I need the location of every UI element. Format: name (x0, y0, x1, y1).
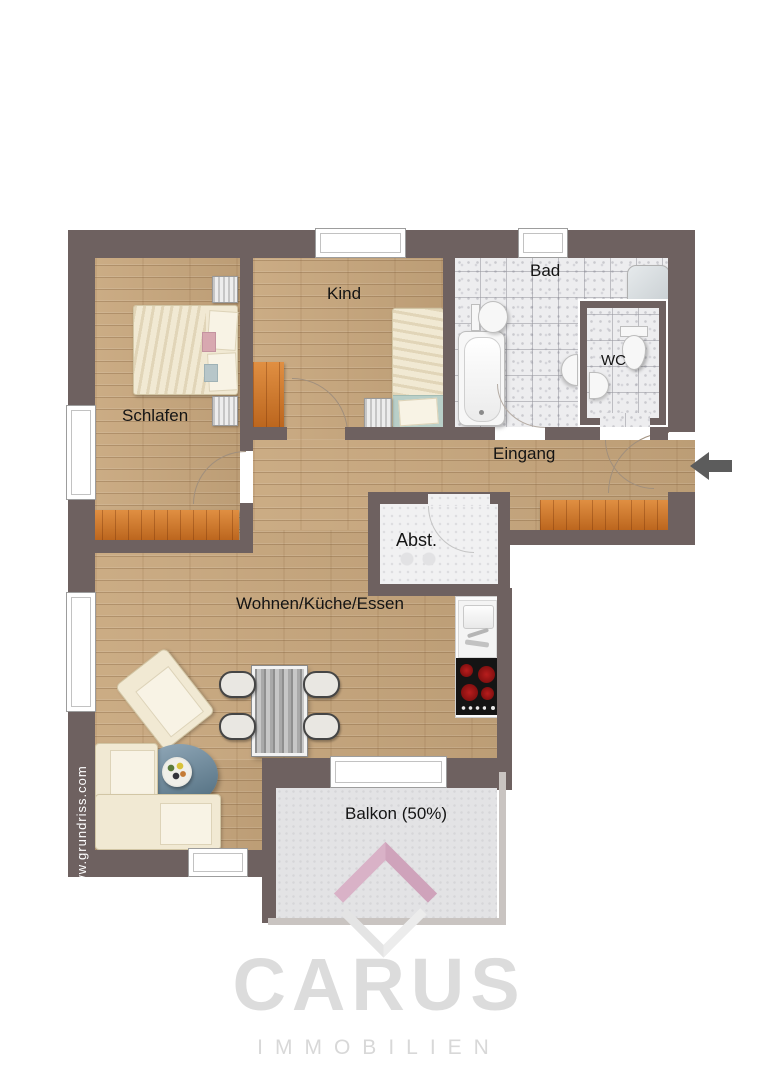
nightstand (364, 398, 392, 428)
sideboard-eingang (540, 500, 668, 530)
burner (461, 684, 478, 701)
dining-table (252, 666, 307, 756)
entrance-arrow-icon (690, 452, 734, 480)
wc-door-opening (600, 413, 650, 427)
stove-knobs (460, 706, 486, 710)
sink-basin (463, 605, 494, 629)
arrow-head (690, 452, 709, 480)
window-frame (193, 853, 243, 872)
single-bed (392, 308, 444, 428)
floor-plan: Schlafen Kind Bad WC Eingang Abst. Wohne… (0, 0, 763, 1080)
room-label-eingang: Eingang (493, 444, 555, 464)
abstellraum-appliances (398, 550, 450, 568)
watermark-text: www.grundriss.com (69, 700, 95, 895)
wall-kind-bottom-right (345, 427, 443, 440)
room-label-bad: Bad (530, 261, 560, 281)
dining-chair (219, 713, 256, 740)
double-bed (133, 305, 238, 395)
room-label-wohnen: Wohnen/Küche/Essen (236, 594, 404, 614)
fruit-bowl (162, 757, 192, 787)
window-frame (523, 233, 563, 253)
stove (456, 658, 499, 715)
kitchen-sink-unit (458, 600, 497, 658)
wardrobe-kind (253, 362, 284, 427)
toilet-bowl (478, 301, 508, 333)
wall-schlafen-kind-low (240, 503, 253, 540)
window-kind-top (315, 228, 406, 258)
wall-bad-bottom-right (650, 427, 668, 440)
window-frame (71, 410, 91, 495)
corner-sofa-bottom (95, 794, 221, 850)
wall-schlafen-kind (240, 258, 253, 451)
wall-bad-bottom-left (455, 427, 495, 440)
sink-faucet (465, 639, 489, 647)
wall-kind-bad (443, 258, 455, 440)
sofa-cushion (110, 750, 155, 798)
wall-balkon-top-left (262, 758, 330, 788)
window-bad-top (518, 228, 568, 258)
brand-subtitle: IMMOBILIEN (239, 1036, 519, 1060)
window-schlafen-left (66, 405, 96, 500)
window-wohnen-left (66, 592, 96, 712)
duvet (134, 306, 206, 394)
accent-pillow (202, 332, 216, 352)
wall-bottom-left-b (248, 850, 268, 877)
wall-schlafen-bottom (95, 540, 253, 553)
room-label-schlafen: Schlafen (122, 406, 188, 426)
stove-knob (491, 706, 495, 710)
dining-chair (303, 671, 340, 698)
balkon-door (330, 756, 447, 788)
dining-chair (303, 713, 340, 740)
wall-corridor-bottom (510, 530, 695, 545)
wall-bad-bottom-mid (545, 427, 600, 440)
toilet-bad (471, 301, 508, 334)
sink-faucet (467, 628, 489, 639)
window-wohnen-bottom (188, 848, 248, 877)
burner (478, 666, 495, 683)
room-label-wc: WC (601, 352, 626, 369)
bathtub (458, 331, 505, 426)
abstellraum-door-opening (428, 494, 490, 506)
arrow-shaft (708, 460, 732, 472)
nightstand (212, 276, 238, 303)
window-frame (320, 233, 401, 253)
room-label-kind: Kind (327, 284, 361, 304)
tub-drain (479, 410, 484, 415)
wall-right-upper (668, 258, 695, 432)
dining-chair (219, 671, 256, 698)
burner (460, 664, 473, 677)
brand-name: CARUS (229, 942, 529, 1027)
sofa-cushion (160, 803, 212, 845)
wall-kind-bottom-left (253, 427, 287, 440)
balkon-railing-right (499, 772, 506, 922)
nightstand (212, 396, 238, 426)
window-frame (335, 761, 442, 783)
duvet (393, 309, 443, 395)
pillow (398, 398, 439, 427)
room-label-abstellraum: Abst. (396, 530, 437, 551)
burner (481, 687, 494, 700)
accent-pillow (204, 364, 218, 382)
room-label-balkon: Balkon (50%) (345, 804, 447, 824)
dresser-schlafen (89, 510, 239, 540)
window-frame (71, 597, 91, 707)
